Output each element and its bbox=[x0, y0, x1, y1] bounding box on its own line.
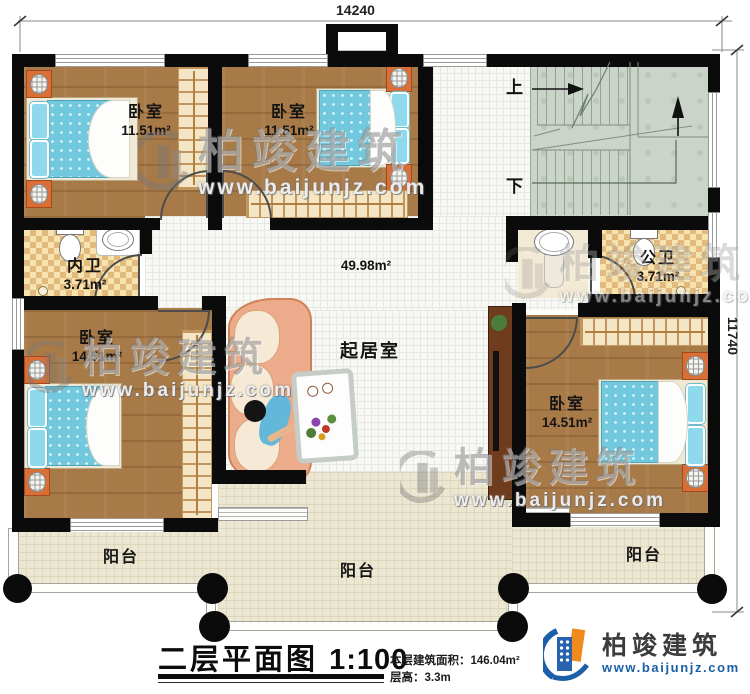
floor-plan: 卧室 11.51m² 卧室 11.51m² 内卫 3.71m² 公卫 3.71m… bbox=[0, 0, 750, 694]
flower bbox=[311, 417, 321, 427]
window-left-bl bbox=[12, 298, 24, 350]
room-label-bath-public: 公卫 3.71m² bbox=[637, 250, 680, 285]
dimension-width: 14240 bbox=[336, 2, 375, 18]
column bbox=[498, 573, 529, 604]
sofa-cushion bbox=[234, 310, 280, 364]
living-area-label: 49.98m² bbox=[341, 258, 391, 274]
stairs-down-label: 下 bbox=[506, 172, 523, 197]
plan-title-text: 二层平面图 bbox=[158, 644, 318, 676]
bed-bl bbox=[24, 356, 122, 494]
pillow bbox=[28, 388, 47, 428]
balcony-step-left bbox=[218, 507, 308, 521]
nightstand bbox=[682, 464, 709, 492]
dimension-height: 11740 bbox=[725, 317, 741, 355]
nightstand bbox=[386, 164, 412, 192]
room-label-living: 起居室 bbox=[340, 341, 400, 362]
stair-treads-upper bbox=[537, 62, 631, 125]
wall-alcove-left bbox=[506, 216, 518, 262]
title-underline-thin bbox=[158, 682, 384, 683]
nightstand bbox=[682, 352, 709, 380]
chimney-flue bbox=[338, 32, 386, 51]
wall-tl-tm bbox=[208, 54, 222, 218]
wall-bath-inner-right bbox=[140, 218, 152, 254]
room-label-bedroom-bl: 卧室 14.51m² bbox=[72, 330, 122, 365]
cup bbox=[322, 382, 334, 394]
cup bbox=[307, 385, 319, 397]
tv-screen bbox=[493, 351, 499, 451]
stair-treads-lower bbox=[537, 150, 631, 215]
wardrobe-rail bbox=[251, 203, 403, 205]
pillow bbox=[30, 102, 49, 140]
nightstand bbox=[26, 70, 52, 98]
window-top-tl bbox=[55, 54, 165, 67]
bed-tl bbox=[26, 70, 138, 208]
pillow bbox=[686, 426, 705, 466]
wardrobe-bl bbox=[182, 330, 212, 520]
sink-basin bbox=[102, 228, 134, 251]
railing-right-bottom bbox=[506, 583, 722, 593]
door-leaf bbox=[526, 317, 576, 319]
bed-br bbox=[598, 352, 708, 490]
wardrobe-rail bbox=[196, 335, 198, 515]
brand-name: 柏竣建筑 bbox=[602, 633, 740, 659]
stairs-up-label: 上 bbox=[506, 73, 523, 98]
wall-bath-public-bottom bbox=[588, 294, 720, 306]
wall-tm-hall bbox=[418, 54, 433, 218]
window-right-bath bbox=[708, 212, 720, 258]
plan-title: 二层平面图 1:100 bbox=[158, 636, 408, 678]
window-bl-balcony bbox=[70, 518, 164, 532]
pillow bbox=[30, 140, 49, 178]
floor-drain bbox=[38, 286, 48, 296]
floor-balcony-center bbox=[218, 472, 514, 624]
nightstand bbox=[24, 356, 50, 384]
nightstand bbox=[386, 64, 412, 92]
window-top-hall bbox=[423, 54, 487, 67]
wall-br-left bbox=[512, 303, 526, 527]
leaf bbox=[327, 414, 337, 424]
flower bbox=[322, 425, 331, 434]
window-top-tm bbox=[248, 54, 328, 67]
brand-logo: 柏竣建筑 www.baijunjz.com bbox=[543, 624, 740, 684]
wall-tl-bottom bbox=[12, 218, 160, 230]
wall-bath-inner-bottom bbox=[12, 296, 158, 310]
door-leaf bbox=[222, 170, 224, 218]
coffee-table bbox=[291, 368, 359, 464]
leaf bbox=[306, 428, 317, 439]
floor-height-value: 3.3m bbox=[425, 672, 451, 684]
pillow bbox=[28, 428, 47, 468]
shared-sink-basin bbox=[534, 228, 574, 256]
floor-height-info: 层高：3.3m bbox=[390, 669, 451, 685]
title-underline-thick bbox=[158, 674, 384, 679]
wall-tl-corner bbox=[208, 218, 222, 230]
column bbox=[197, 573, 228, 604]
wall-living-bottom bbox=[212, 470, 306, 484]
column bbox=[3, 574, 32, 603]
nightstand bbox=[26, 180, 52, 208]
room-label-bedroom-tl: 卧室 11.51m² bbox=[121, 104, 171, 139]
wardrobe-rail bbox=[585, 331, 705, 333]
wall-bl-right bbox=[212, 296, 226, 484]
door-leaf bbox=[158, 310, 208, 312]
plant bbox=[491, 315, 507, 331]
floor-area-value: 146.04m² bbox=[471, 655, 520, 667]
door-leaf bbox=[138, 254, 140, 300]
floor-height-label: 层高： bbox=[390, 672, 425, 684]
sink-pedestal bbox=[544, 254, 564, 288]
bed-tm bbox=[314, 62, 410, 192]
person-head bbox=[244, 400, 266, 422]
door-leaf bbox=[590, 254, 592, 298]
brand-logo-icon bbox=[543, 624, 593, 684]
wall-left bbox=[12, 54, 24, 532]
flower bbox=[318, 433, 325, 440]
column bbox=[497, 611, 528, 642]
balcony-label-left: 阳台 bbox=[103, 543, 139, 567]
railing-center-bottom bbox=[206, 621, 518, 631]
room-label-bedroom-br: 卧室 14.51m² bbox=[542, 396, 592, 431]
window-br-balcony bbox=[570, 513, 660, 527]
floor-area-info: 本层建筑面积：146.04m² bbox=[390, 652, 520, 668]
balcony-label-right: 阳台 bbox=[626, 541, 662, 565]
brand-url: www.baijunjz.com bbox=[602, 660, 740, 675]
column bbox=[697, 574, 727, 604]
blanket bbox=[86, 386, 120, 466]
balcony-label-center: 阳台 bbox=[340, 557, 376, 581]
room-label-bedroom-tm: 卧室 11.51m² bbox=[264, 104, 314, 139]
wall-alcove-bath bbox=[588, 228, 602, 258]
tv-cabinet bbox=[488, 306, 514, 500]
pillow bbox=[686, 384, 705, 424]
window-right-stairs bbox=[708, 92, 720, 188]
nightstand bbox=[24, 468, 50, 496]
wardrobe-rail bbox=[193, 71, 195, 185]
wardrobe-br bbox=[580, 318, 710, 346]
floor-balcony-right bbox=[512, 522, 710, 589]
wall-tm-bottom bbox=[270, 218, 433, 230]
wall-under-stairs bbox=[508, 216, 720, 230]
railing-left-bottom bbox=[8, 583, 222, 593]
floor-area-label: 本层建筑面积： bbox=[390, 655, 471, 667]
room-label-bath-inner: 内卫 3.71m² bbox=[64, 258, 107, 293]
